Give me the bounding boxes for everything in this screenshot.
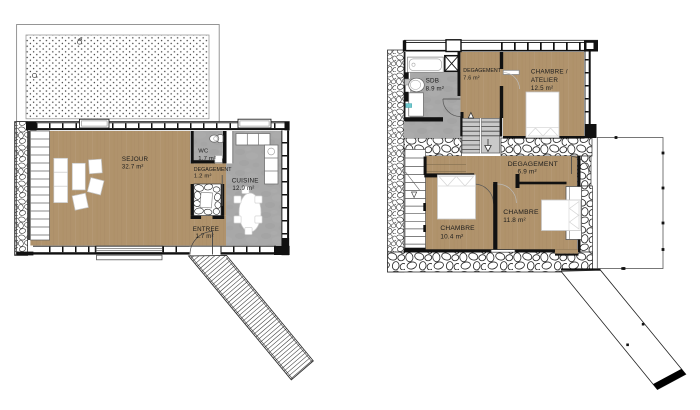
svg-text:10.4 m²: 10.4 m² (440, 234, 463, 241)
svg-text:DEGAGEMENT: DEGAGEMENT (463, 68, 501, 74)
svg-text:6.9 m²: 6.9 m² (518, 169, 537, 176)
svg-text:8.9 m²: 8.9 m² (426, 86, 444, 93)
svg-text:32.7 m²: 32.7 m² (122, 165, 144, 171)
svg-text:ATELIER: ATELIER (531, 77, 558, 84)
svg-text:12.9 m²: 12.9 m² (232, 185, 254, 192)
svg-text:CHAMBRE: CHAMBRE (503, 209, 539, 216)
svg-text:CUISINE: CUISINE (232, 178, 259, 185)
svg-text:1.7 m²: 1.7 m² (196, 234, 214, 240)
svg-text:SDB: SDB (426, 78, 440, 85)
svg-text:SEJOUR: SEJOUR (122, 156, 149, 163)
svg-text:12.5 m²: 12.5 m² (531, 85, 553, 92)
svg-text:1.2 m²: 1.2 m² (194, 174, 212, 180)
svg-text:CHAMBRE: CHAMBRE (440, 225, 475, 232)
svg-text:DEGAGEMENT: DEGAGEMENT (508, 161, 558, 168)
svg-text:DEGAGEMENT: DEGAGEMENT (194, 167, 232, 173)
svg-text:7.6 m²: 7.6 m² (463, 75, 479, 81)
svg-text:11.8 m²: 11.8 m² (503, 217, 526, 224)
svg-text:WC: WC (198, 148, 209, 154)
svg-text:CHAMBRE /: CHAMBRE / (531, 69, 568, 76)
svg-text:ENTREE: ENTREE (193, 226, 219, 233)
svg-text:1.7 m²: 1.7 m² (198, 156, 216, 162)
